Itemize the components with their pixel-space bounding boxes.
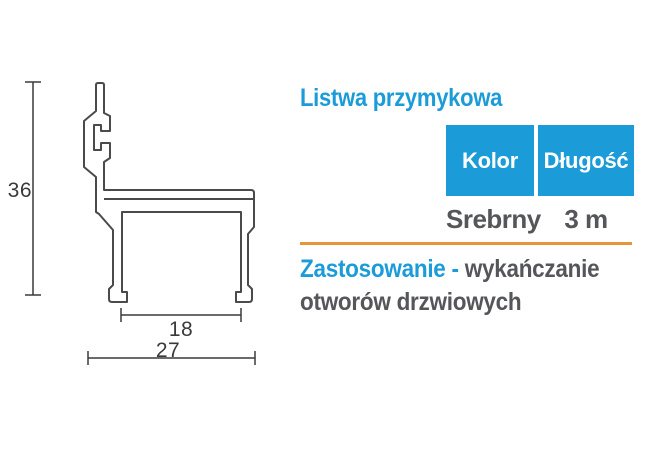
spec-value-color: Srebrny — [446, 204, 534, 235]
product-title: Listwa przymykowa — [300, 84, 529, 113]
spec-table-header-row: Kolor Długość — [446, 125, 634, 196]
dimension-value-height: 36 — [4, 179, 32, 203]
product-card: 36 18 27 Listwa przymykowa Kolor Długość… — [0, 0, 650, 450]
profile-outline — [84, 83, 254, 302]
dimension-value-outer-width: 27 — [138, 339, 198, 363]
spec-table-value-row: Srebrny 3 m — [446, 204, 634, 235]
spec-header-length: Długość — [538, 125, 634, 196]
spec-value-length: 3 m — [538, 204, 634, 235]
profile-cross-section-drawing — [0, 0, 300, 450]
orange-divider — [300, 242, 632, 245]
spec-header-color: Kolor — [446, 125, 534, 196]
application-label: Zastosowanie - — [300, 255, 459, 283]
application-note: Zastosowanie - wykańczanie otworów drzwi… — [300, 253, 646, 319]
